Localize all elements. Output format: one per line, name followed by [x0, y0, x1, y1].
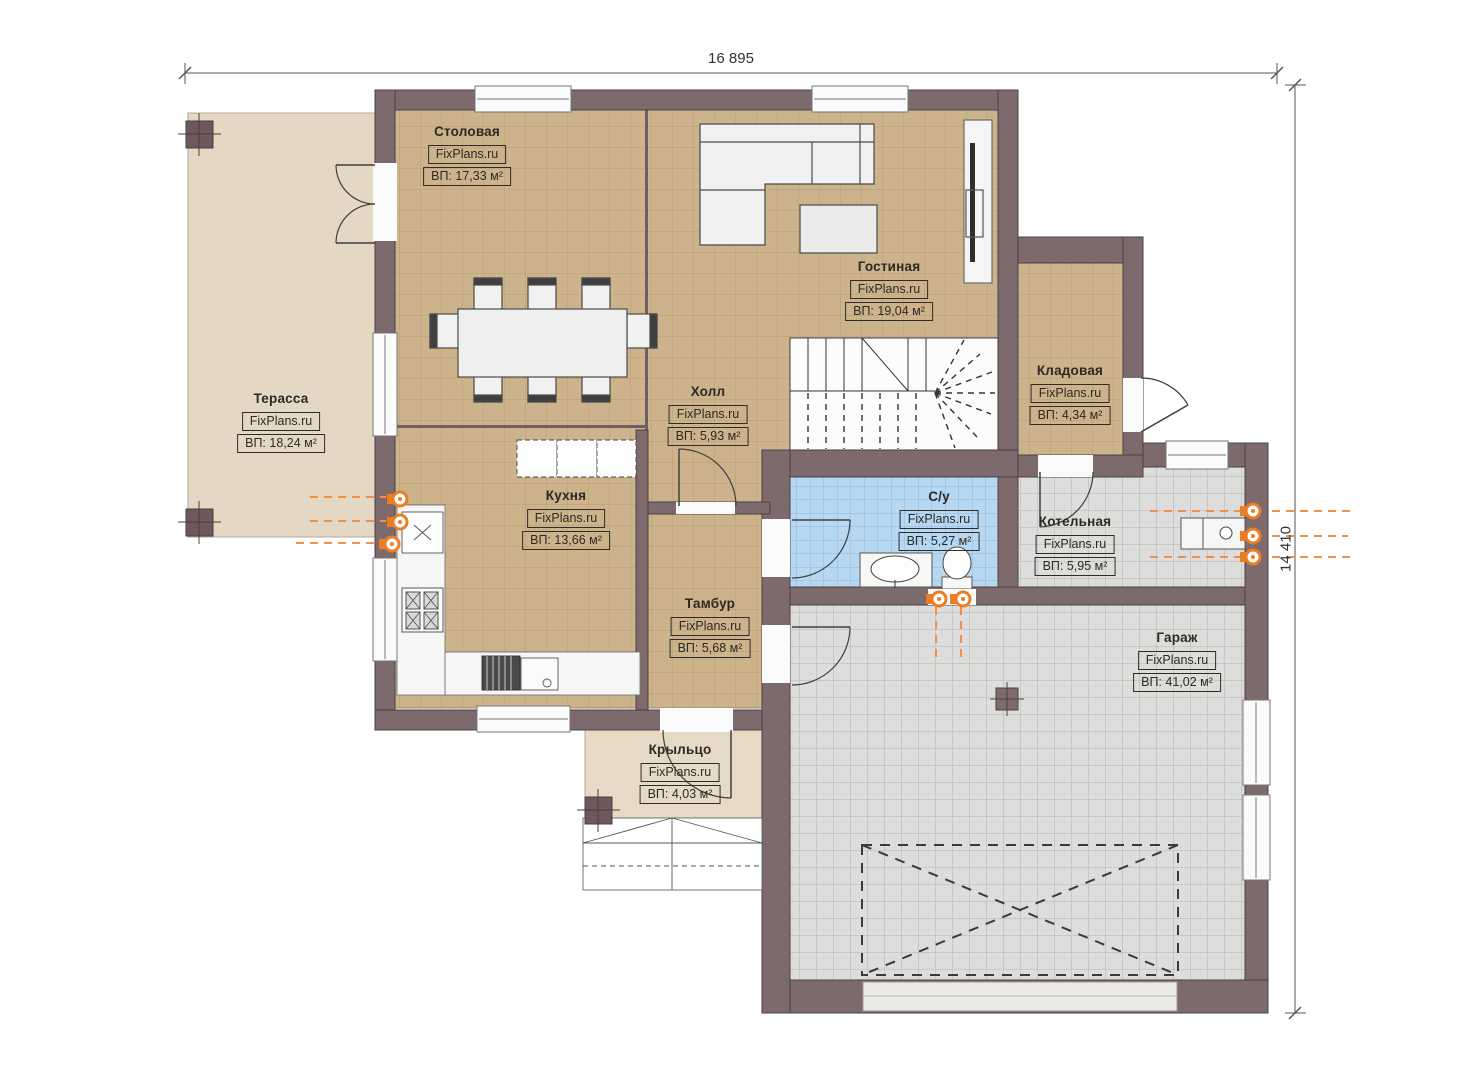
wall-garage-top: [790, 587, 1245, 605]
window-garage-1: [1243, 700, 1270, 785]
wall-bathroom-top: [762, 450, 1018, 477]
porch-steps: [583, 818, 762, 890]
door-storage-exterior: [1123, 378, 1188, 432]
garage-gate: [863, 982, 1177, 1011]
boiler-equipment: [1181, 518, 1245, 549]
wall-right-main: [998, 90, 1018, 605]
sink: [402, 512, 443, 553]
window-bottom-kitchen: [477, 706, 570, 732]
toilet: [942, 547, 972, 589]
window-left-kitchen: [373, 558, 397, 661]
terrace-floor: [188, 113, 377, 537]
wall-cabinets: [517, 440, 636, 477]
tv-unit: [964, 120, 992, 283]
dimension-width-label: 16 895: [708, 50, 754, 67]
window-top-1: [475, 86, 571, 112]
staircase: [790, 338, 998, 450]
dishwasher: [521, 658, 558, 690]
floor-plan: 16 895 14 410 Столовая FixPlans.ru ВП: 1…: [0, 0, 1473, 1080]
storage-floor: [1018, 257, 1123, 455]
garage-floor: [790, 605, 1245, 980]
sink-basin: [871, 556, 919, 582]
bathroom-fixtures: [860, 547, 972, 589]
window-boiler: [1166, 441, 1228, 469]
window-top-2: [812, 86, 908, 112]
dining-table: [458, 309, 627, 377]
stove: [402, 588, 443, 632]
window-garage-2: [1243, 795, 1270, 880]
coffee-table: [800, 205, 877, 253]
window-left-dining: [373, 333, 397, 436]
fridge: [482, 656, 520, 690]
floorplan-canvas: [0, 0, 1473, 1080]
dimension-height-label: 14 410: [1278, 526, 1295, 572]
wall-top: [375, 90, 1018, 110]
